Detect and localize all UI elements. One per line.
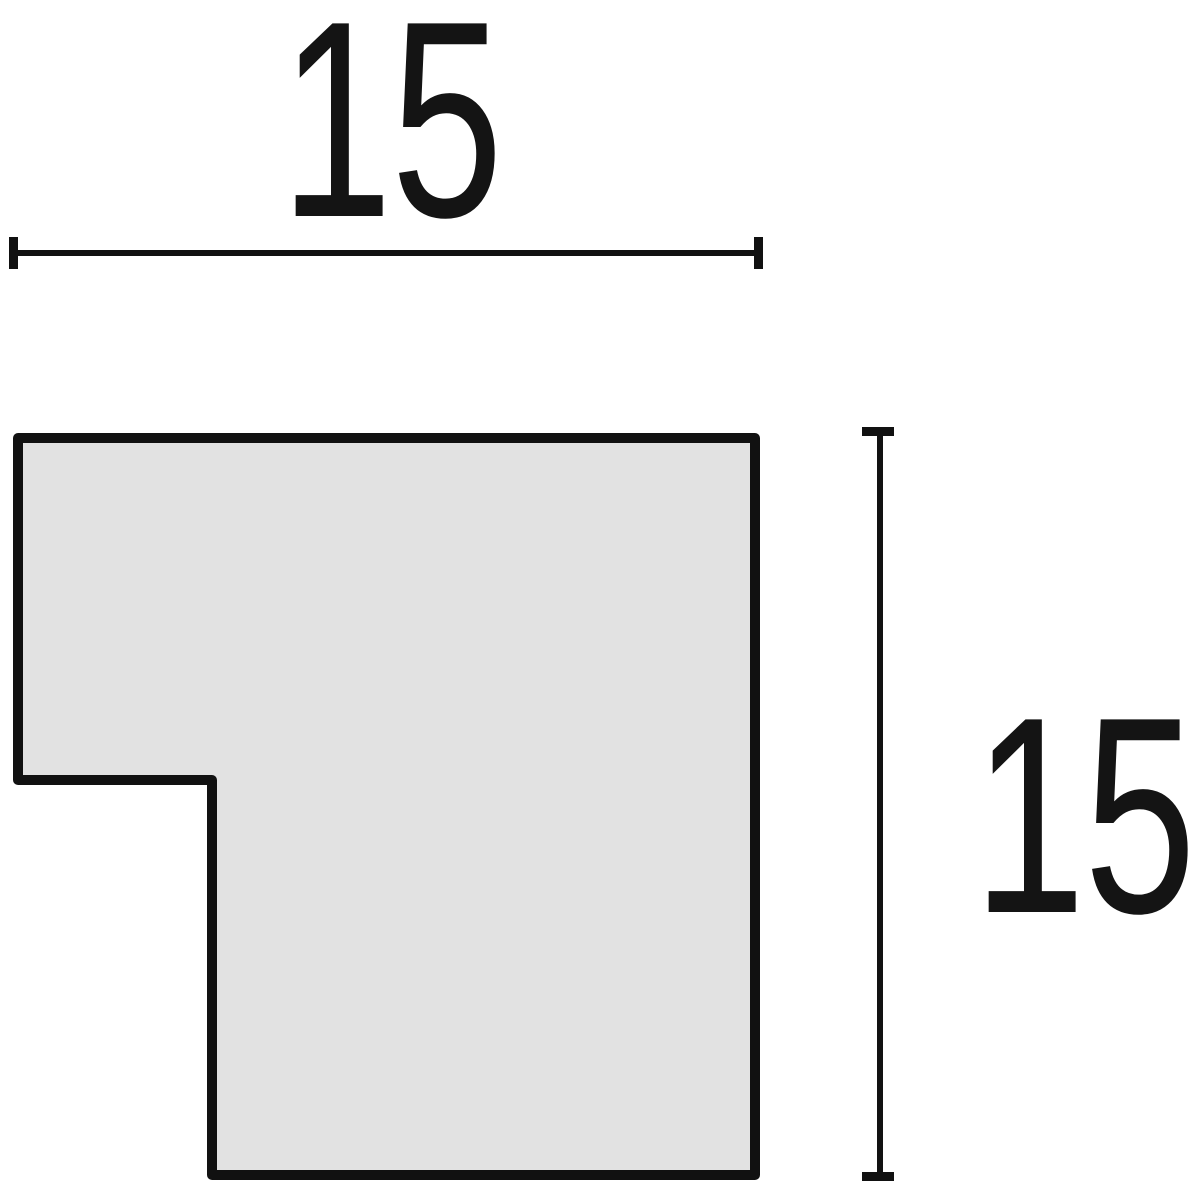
height-dimension-top-tick-icon xyxy=(862,427,894,436)
diagram-canvas: 15 15 xyxy=(0,0,1199,1200)
width-dimension-left-tick-icon xyxy=(9,237,18,269)
height-dimension-label: 15 xyxy=(940,676,1199,956)
width-dimension-label: 15 xyxy=(247,0,535,260)
width-dimension-right-tick-icon xyxy=(754,237,763,269)
height-dimension-bottom-tick-icon xyxy=(862,1172,894,1181)
dimension-drawing xyxy=(0,0,1199,1200)
height-dimension-line xyxy=(862,427,894,1181)
frame-profile-shape xyxy=(18,438,755,1175)
